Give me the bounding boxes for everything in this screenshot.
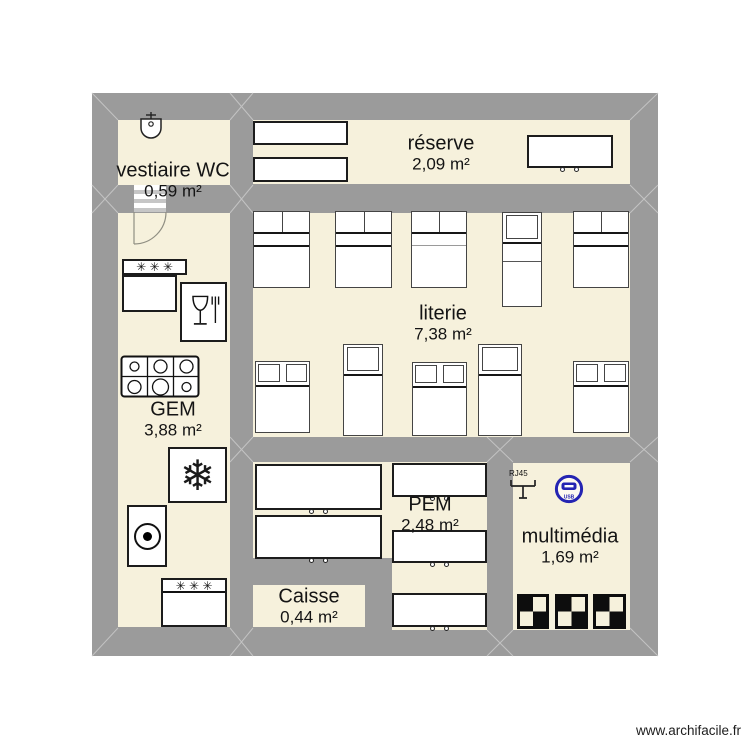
- bed-line: [412, 245, 466, 246]
- bed-double[interactable]: [253, 211, 310, 288]
- cabinet[interactable]: [255, 515, 382, 559]
- bed-line: [256, 385, 309, 387]
- bed-pillow: [604, 364, 626, 382]
- bed-line: [254, 245, 309, 247]
- checker-tile[interactable]: [555, 594, 588, 629]
- bed-pillow: [576, 364, 598, 382]
- bed-pillow-divider: [601, 212, 602, 232]
- room-label-caisse: Caisse0,44 m²: [278, 585, 339, 626]
- freezer-snowflake-icon[interactable]: ❄: [168, 447, 227, 503]
- room-area: 0,44 m²: [278, 608, 339, 627]
- room-name: vestiaire WC: [116, 159, 229, 181]
- bed-double[interactable]: [412, 362, 467, 436]
- cabinet-knob: [574, 167, 579, 172]
- checker-tile[interactable]: [517, 594, 549, 629]
- room-name: literie: [414, 302, 472, 324]
- bed-line: [503, 261, 541, 262]
- bed-double[interactable]: [255, 361, 310, 433]
- room-area: 0,59 m²: [116, 182, 229, 201]
- bed-line: [574, 232, 628, 234]
- bed-double[interactable]: [573, 361, 629, 433]
- bed-single[interactable]: [502, 212, 542, 307]
- bed-pillow: [482, 347, 518, 371]
- snowflake-glyph: ❄: [180, 451, 215, 500]
- bed-line: [336, 232, 391, 234]
- shelf-box[interactable]: [253, 121, 348, 145]
- cabinet[interactable]: [392, 463, 487, 497]
- cabinet-knob: [560, 167, 565, 172]
- room-name: PEM: [401, 493, 459, 515]
- oven-stars: ✳ ✳ ✳: [163, 580, 225, 593]
- bed-line: [336, 245, 391, 247]
- checker-tile[interactable]: [593, 594, 626, 629]
- cabinet[interactable]: [255, 464, 382, 510]
- hotplate-ring: [134, 523, 161, 550]
- room-label-gem: GEM3,88 m²: [144, 398, 202, 439]
- bed-pillow: [506, 215, 538, 239]
- room-name: multimédia: [522, 525, 619, 547]
- cabinet-knob: [323, 509, 328, 514]
- bed-line: [503, 242, 541, 244]
- room-area: 1,69 m²: [522, 548, 619, 567]
- bed-pillow: [415, 365, 437, 383]
- shelf-box[interactable]: [253, 157, 348, 182]
- usb-socket-icon[interactable]: USB: [554, 474, 584, 504]
- rj45-label: RJ45: [509, 469, 539, 478]
- bed-double[interactable]: [573, 211, 629, 288]
- hotplate-icon[interactable]: [127, 505, 167, 567]
- door-swing-arc[interactable]: [134, 212, 168, 246]
- oven-icon[interactable]: ✳ ✳ ✳: [161, 578, 227, 627]
- cabinet[interactable]: [392, 530, 487, 563]
- bed-double[interactable]: [411, 211, 467, 288]
- bed-pillow-divider: [364, 212, 365, 232]
- bed-line: [574, 385, 628, 387]
- svg-text:USB: USB: [564, 495, 575, 501]
- cabinet-knob: [444, 562, 449, 567]
- dishwasher-icon[interactable]: [180, 282, 227, 342]
- hotplate-dot: [143, 532, 152, 541]
- cabinet-knob: [323, 558, 328, 563]
- bed-pillow: [286, 364, 308, 382]
- hob-icon[interactable]: [120, 355, 200, 398]
- cabinet[interactable]: [392, 593, 487, 627]
- cabinet-knob: [444, 626, 449, 631]
- bed-pillow: [443, 365, 465, 383]
- bed-line: [574, 245, 628, 247]
- bed-pillow: [258, 364, 280, 382]
- bed-single[interactable]: [343, 344, 383, 436]
- bed-pillow: [347, 347, 379, 371]
- floorplan-canvas: ✳ ✳ ✳❄✳ ✳ ✳RJ45USBvestiaire WC0,59 m²rés…: [0, 0, 750, 750]
- room-name: GEM: [144, 398, 202, 420]
- bed-line: [344, 374, 382, 376]
- bed-pillow-divider: [282, 212, 283, 232]
- bed-pillow-divider: [439, 212, 440, 232]
- room-area: 2,48 m²: [401, 516, 459, 535]
- room-label-literie: literie7,38 m²: [414, 302, 472, 343]
- room-area: 2,09 m²: [408, 155, 475, 174]
- room-label-reserve: réserve2,09 m²: [408, 132, 475, 173]
- bed-line: [413, 386, 466, 388]
- room-label-multimedia: multimédia1,69 m²: [522, 525, 619, 566]
- room-name: Caisse: [278, 585, 339, 607]
- bed-line: [254, 232, 309, 234]
- bed-double[interactable]: [335, 211, 392, 288]
- bed-line: [412, 232, 466, 234]
- room-area: 7,38 m²: [414, 325, 472, 344]
- cabinet-knob: [309, 558, 314, 563]
- room-label-vestiaire-wc: vestiaire WC0,59 m²: [116, 159, 229, 200]
- cabinet-knob: [430, 626, 435, 631]
- cabinet-knob: [309, 509, 314, 514]
- rj45-socket-icon[interactable]: RJ45: [509, 469, 539, 507]
- cabinet-knob: [430, 562, 435, 567]
- watermark: www.archifacile.fr: [636, 723, 741, 738]
- shelf-box[interactable]: [122, 275, 177, 312]
- cabinet[interactable]: [527, 135, 613, 168]
- fridge-stars-icon[interactable]: ✳ ✳ ✳: [122, 259, 187, 275]
- room-label-pem: PEM2,48 m²: [401, 493, 459, 534]
- bed-single[interactable]: [478, 344, 522, 436]
- bed-line: [479, 374, 521, 376]
- sink-icon[interactable]: [137, 112, 165, 145]
- room-name: réserve: [408, 132, 475, 154]
- room-area: 3,88 m²: [144, 421, 202, 440]
